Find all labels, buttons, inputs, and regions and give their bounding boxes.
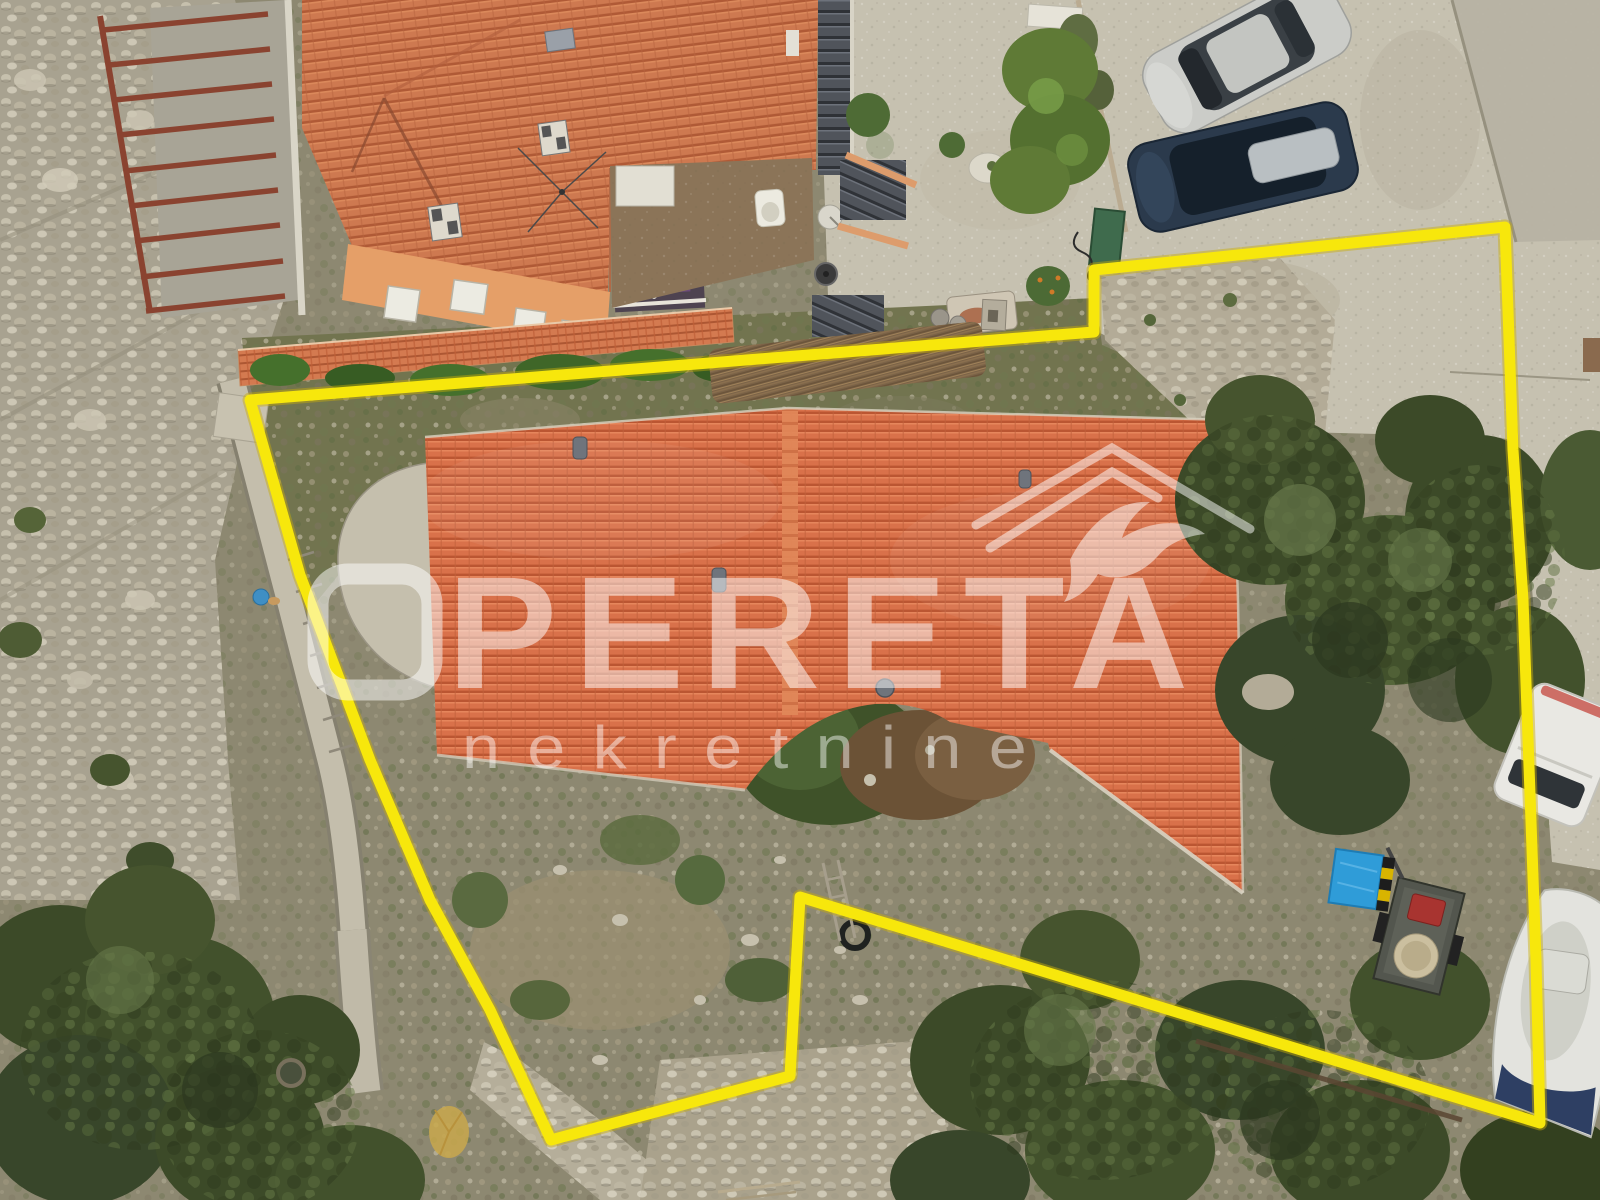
- stone-well: [278, 1060, 304, 1086]
- aerial-photo-scene: PERETA nekretnine: [0, 0, 1600, 1200]
- green-door: [1089, 209, 1125, 268]
- watermark-title: PERETA: [447, 543, 1205, 722]
- chimney: [428, 203, 462, 241]
- flower-bush: [1026, 266, 1070, 306]
- blue-bucket: [253, 589, 269, 605]
- small-animal: [268, 597, 280, 605]
- concrete-remnant: [1242, 674, 1294, 710]
- roof-pipe: [786, 30, 799, 56]
- skylight: [545, 28, 576, 52]
- dry-grass-tuft: [429, 1106, 469, 1158]
- barrel: [931, 309, 949, 327]
- blue-tarp: [1328, 849, 1395, 912]
- watermark-subtitle: nekretnine: [462, 714, 1054, 781]
- white-chair: [754, 189, 785, 227]
- aerial-photo: PERETA nekretnine: [0, 0, 1600, 1200]
- concrete-block: [981, 299, 1007, 330]
- round-grill: [815, 263, 837, 285]
- window: [450, 280, 488, 314]
- window: [384, 286, 420, 322]
- manhole: [1583, 338, 1600, 372]
- chimney: [538, 120, 570, 156]
- planter: [616, 166, 674, 206]
